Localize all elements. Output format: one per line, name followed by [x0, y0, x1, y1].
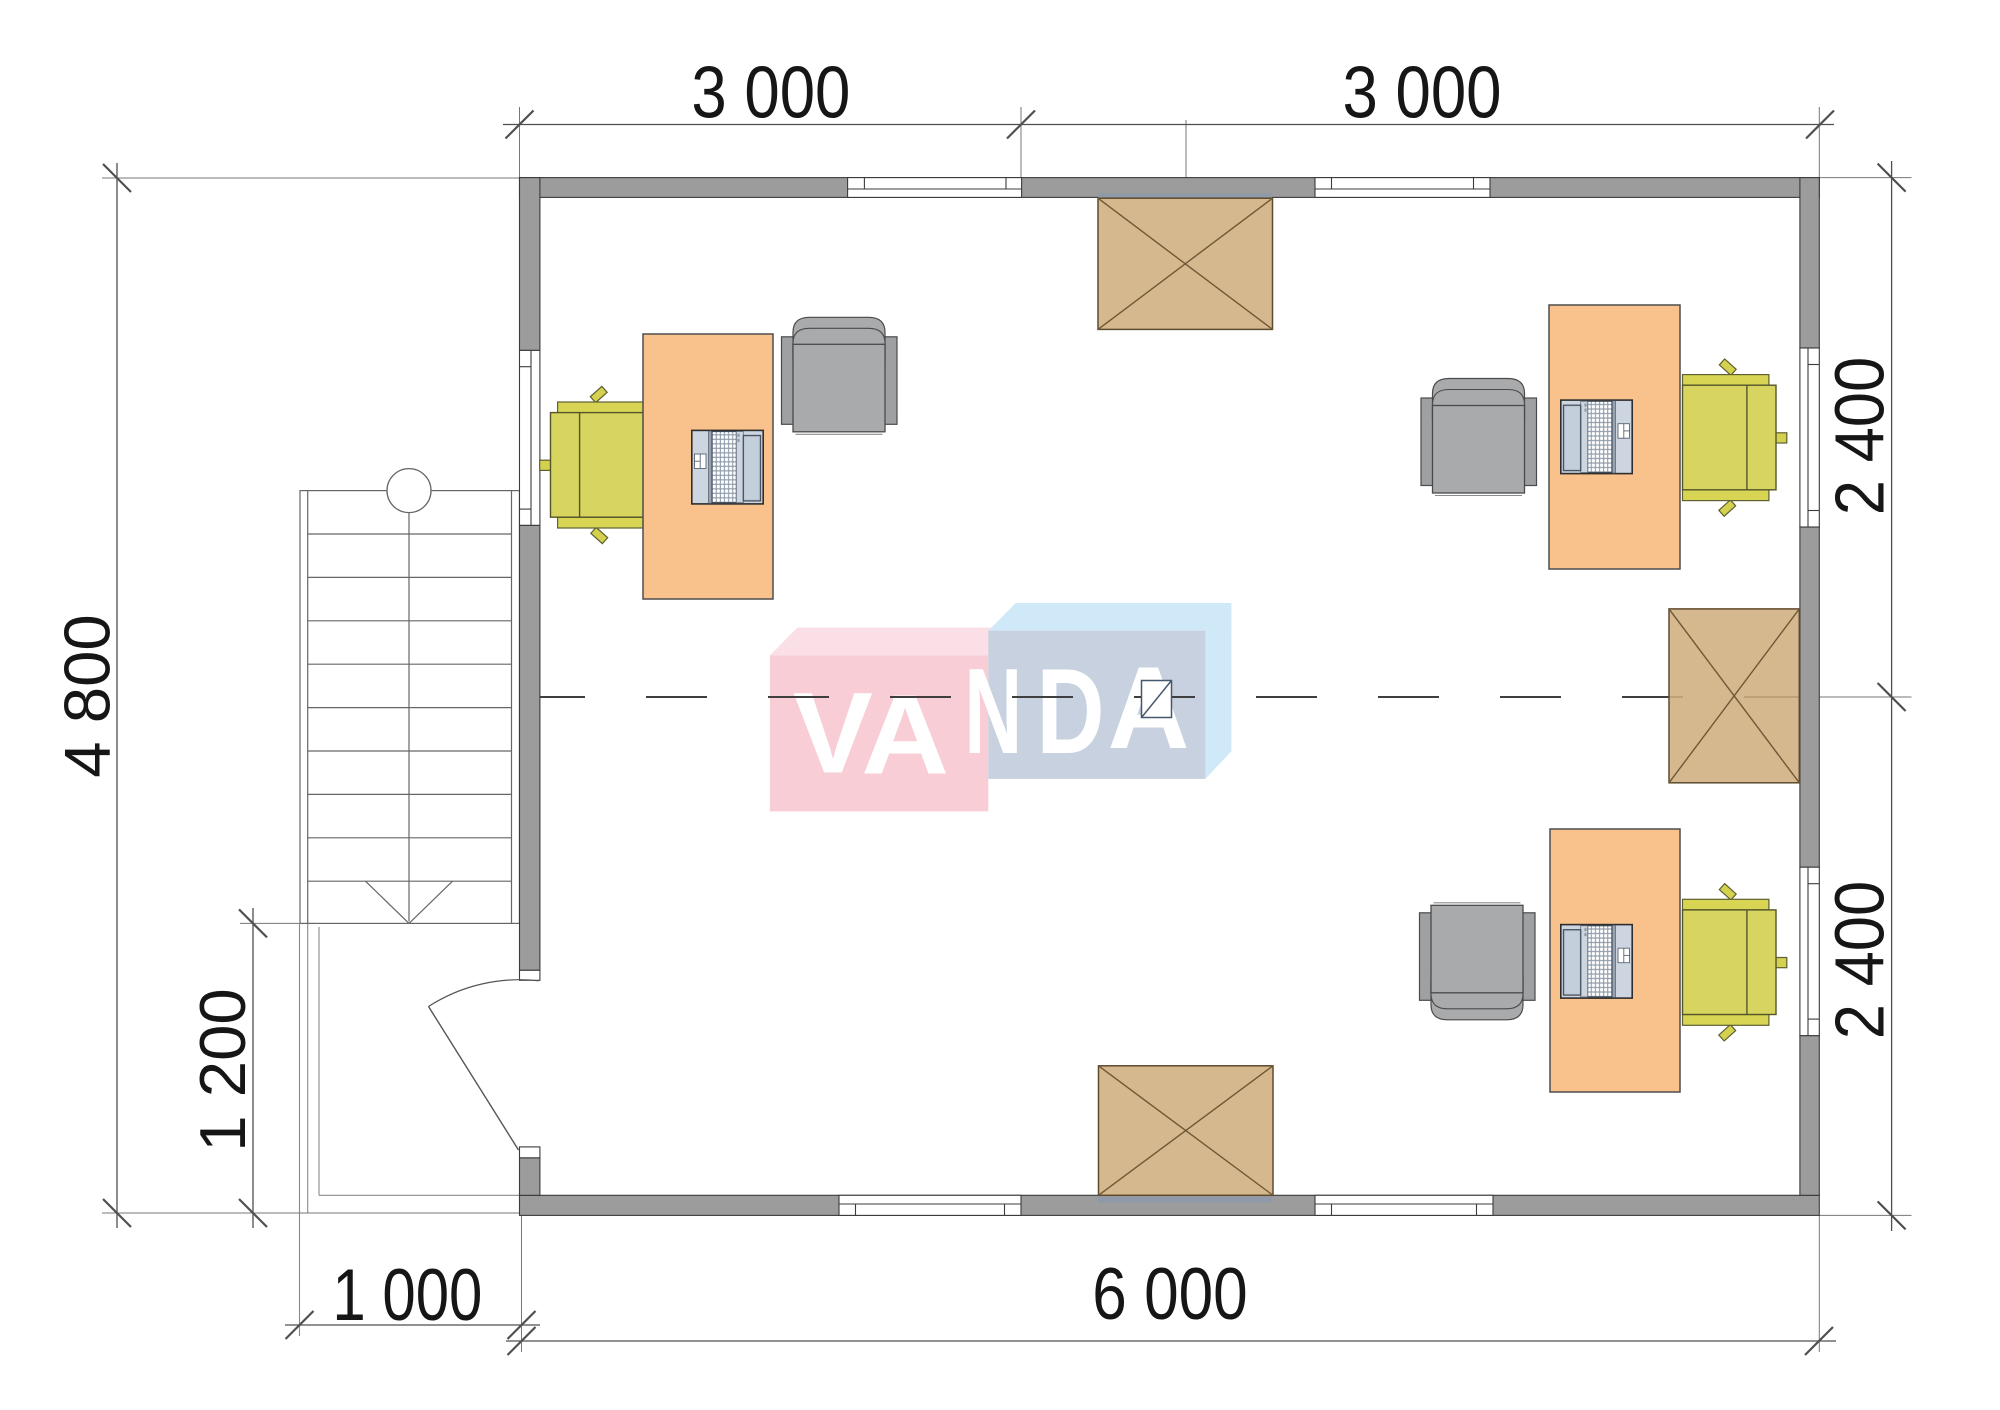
- svg-text:4 800: 4 800: [51, 614, 124, 777]
- svg-text:3 000: 3 000: [1343, 50, 1502, 133]
- svg-text:6 000: 6 000: [1092, 1252, 1247, 1335]
- svg-text:1 000: 1 000: [332, 1253, 482, 1336]
- svg-text:D: D: [1037, 643, 1105, 779]
- svg-text:1 200: 1 200: [186, 988, 259, 1151]
- svg-text:2 400: 2 400: [1820, 881, 1898, 1040]
- svg-text:N: N: [964, 643, 1022, 779]
- svg-text:2 400: 2 400: [1820, 357, 1898, 516]
- svg-text:A: A: [861, 672, 949, 799]
- svg-text:3 000: 3 000: [691, 50, 850, 133]
